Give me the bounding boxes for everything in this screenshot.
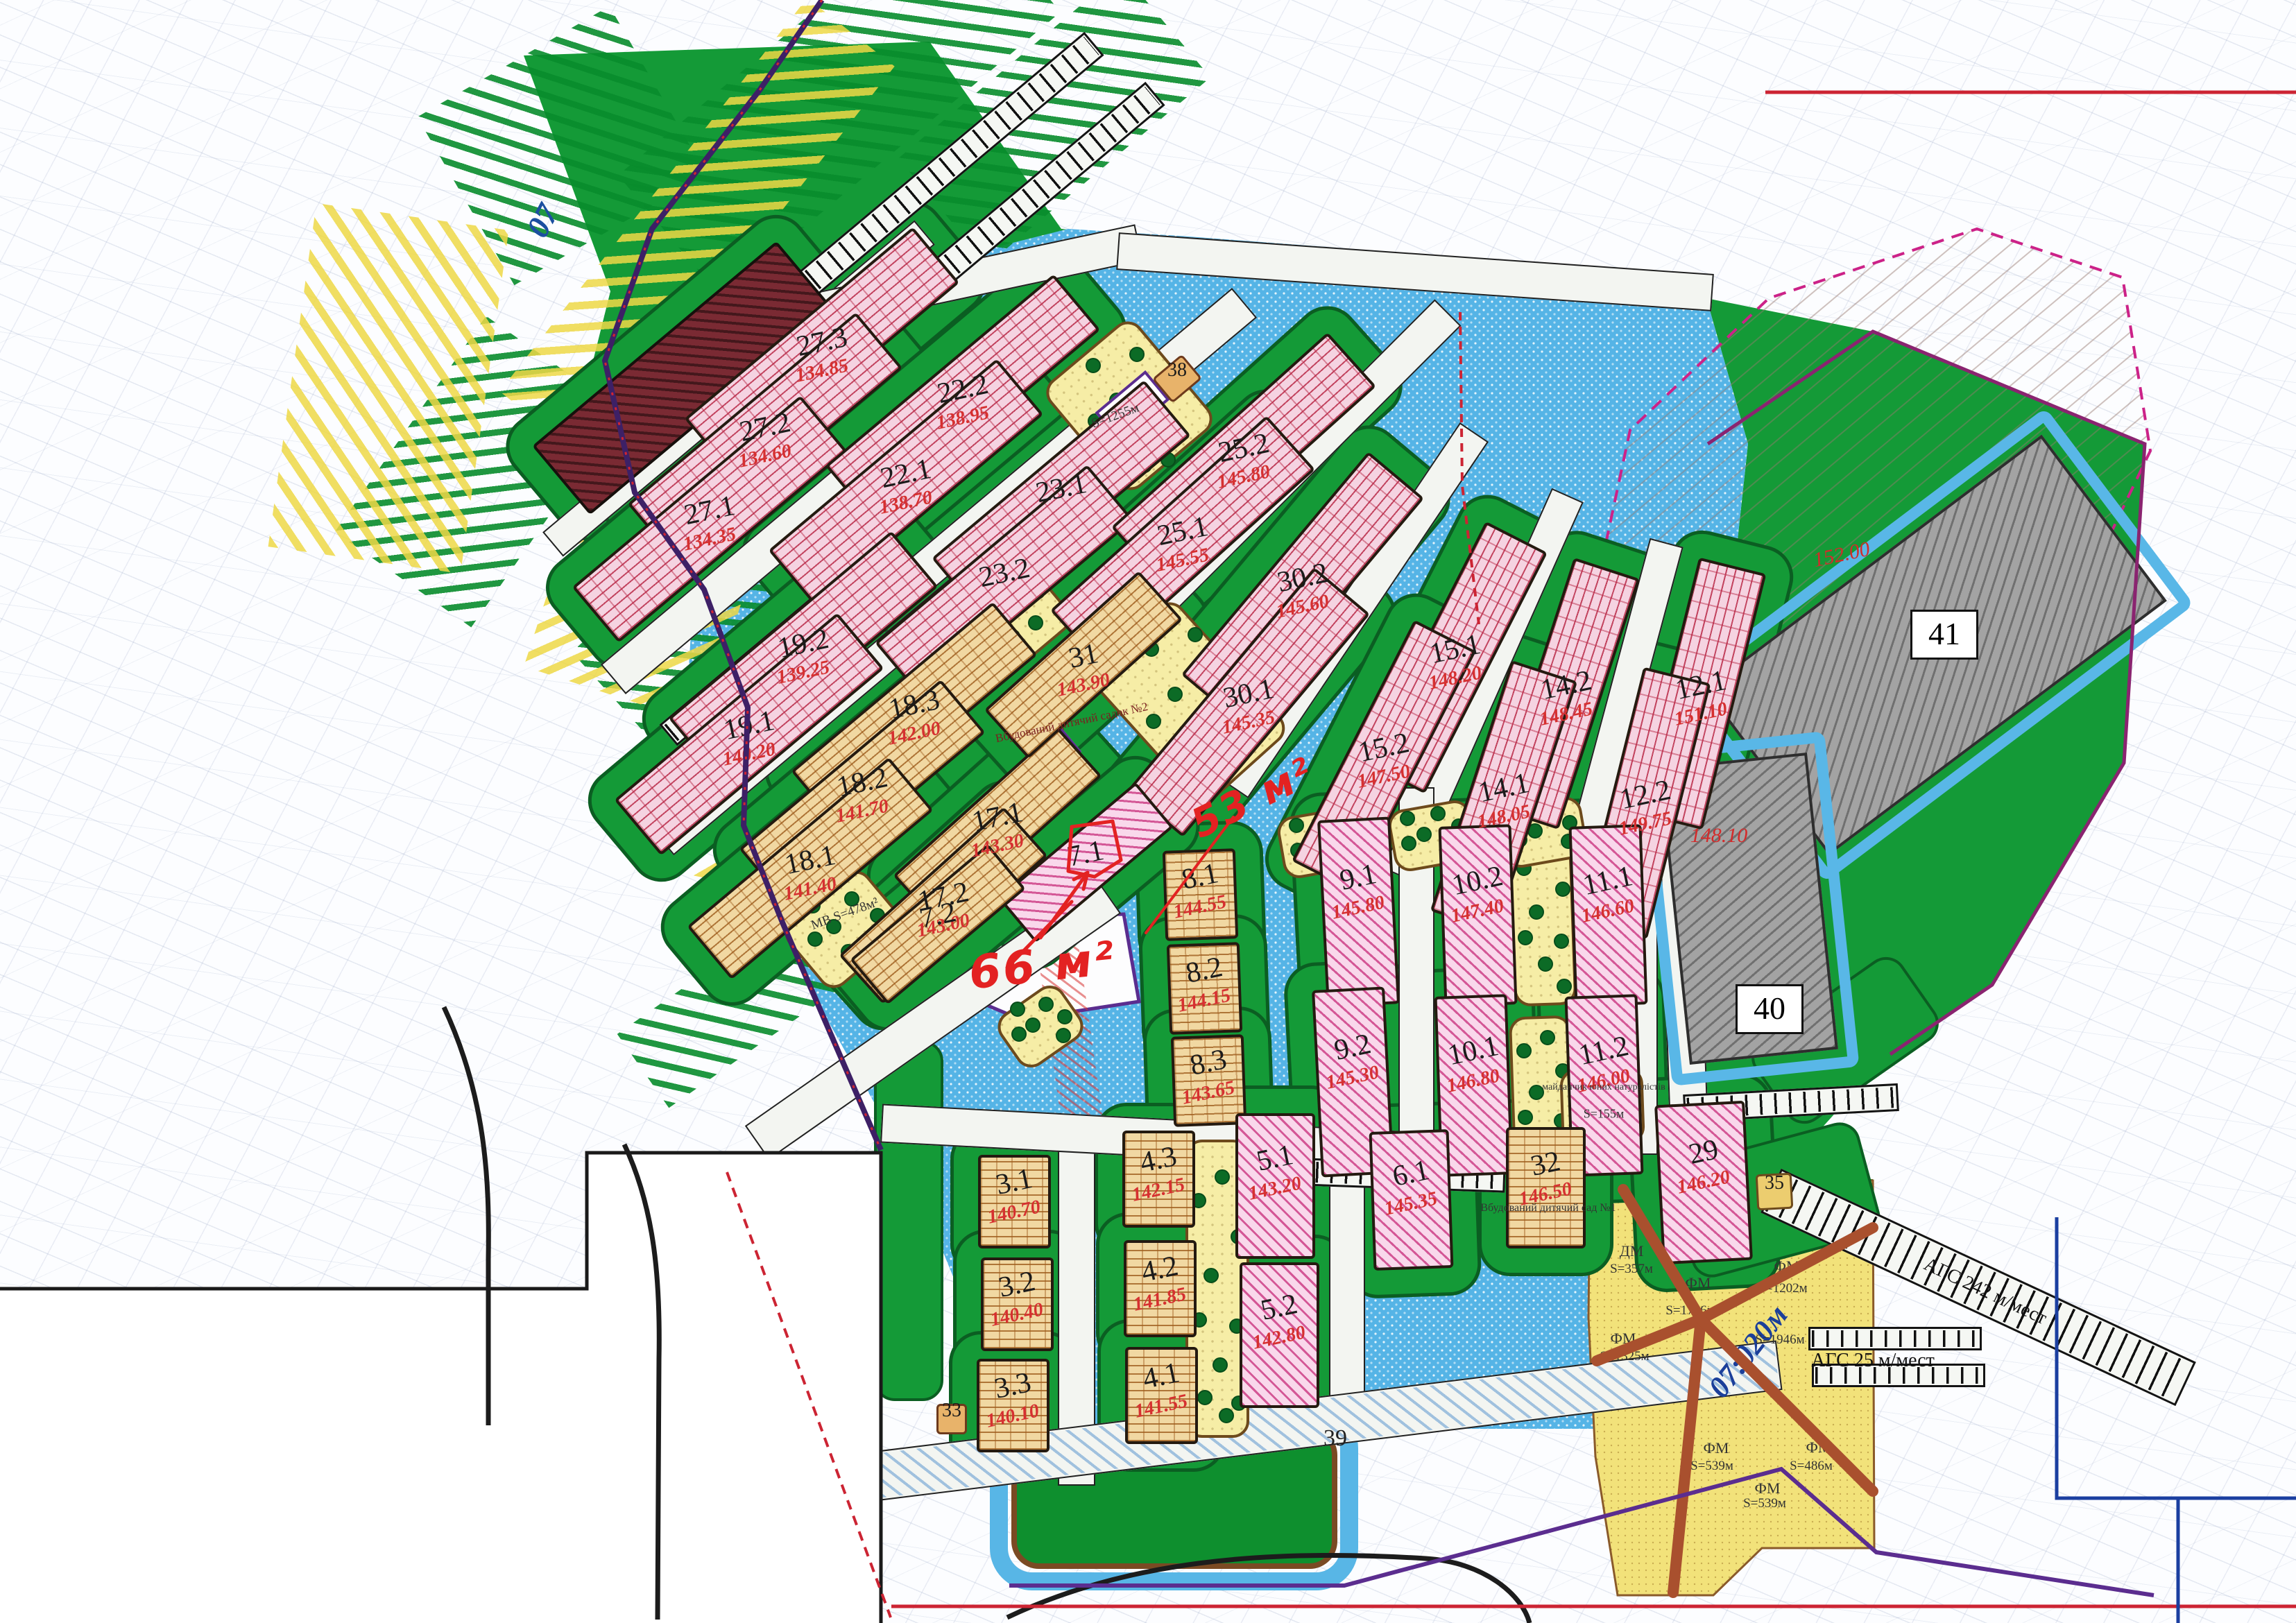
boundary-purple-right: [1708, 332, 2145, 1054]
blank-sheet-corner: [0, 1153, 881, 1623]
red-dashed-top: [1460, 312, 1479, 624]
urban-plan-map: 27.3134.8527.2134.6027.1134.3522.2138.95…: [0, 0, 2296, 1623]
annotation-arrow-66-stroke2: [1007, 902, 1072, 968]
annotation-line-53: [1146, 817, 1233, 933]
yellow-zone-path-3: [1701, 1319, 1873, 1491]
boundary-red-dotted: [605, 0, 881, 1150]
boundary-purple-main: [605, 0, 881, 1150]
yellow-zone-path-2: [1597, 1228, 1873, 1361]
black-road-curve-3: [1007, 1555, 1530, 1623]
boundary-purple-bottom: [1009, 1469, 2154, 1595]
annotation-scribble-outline: [1068, 821, 1121, 877]
lines-annotations-layer: [0, 0, 2296, 1623]
blue-cadastre-line-1: [2057, 1217, 2296, 1498]
yellow-zone-path-1: [1623, 1190, 1701, 1592]
